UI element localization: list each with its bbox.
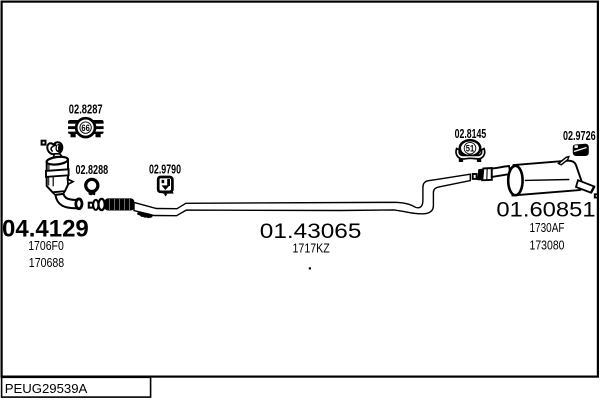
svg-text:01.43065: 01.43065 — [260, 219, 362, 243]
svg-text:02.8145: 02.8145 — [455, 126, 487, 141]
svg-text:02.9790: 02.9790 — [149, 162, 181, 177]
svg-text:173080: 173080 — [530, 237, 565, 252]
svg-text:51: 51 — [466, 144, 475, 155]
svg-text:PEUG29539A: PEUG29539A — [5, 381, 88, 396]
svg-text:1706F0: 1706F0 — [28, 238, 64, 253]
svg-text:01.60851: 01.60851 — [496, 198, 595, 222]
svg-text:1730AF: 1730AF — [530, 220, 565, 235]
svg-text:02.8288: 02.8288 — [76, 162, 109, 177]
svg-text:02.8287: 02.8287 — [69, 102, 103, 117]
svg-text:170688: 170688 — [29, 255, 64, 270]
svg-text:66: 66 — [81, 123, 89, 134]
svg-text:02.9726: 02.9726 — [563, 128, 596, 143]
svg-text:1717KZ: 1717KZ — [293, 241, 330, 256]
